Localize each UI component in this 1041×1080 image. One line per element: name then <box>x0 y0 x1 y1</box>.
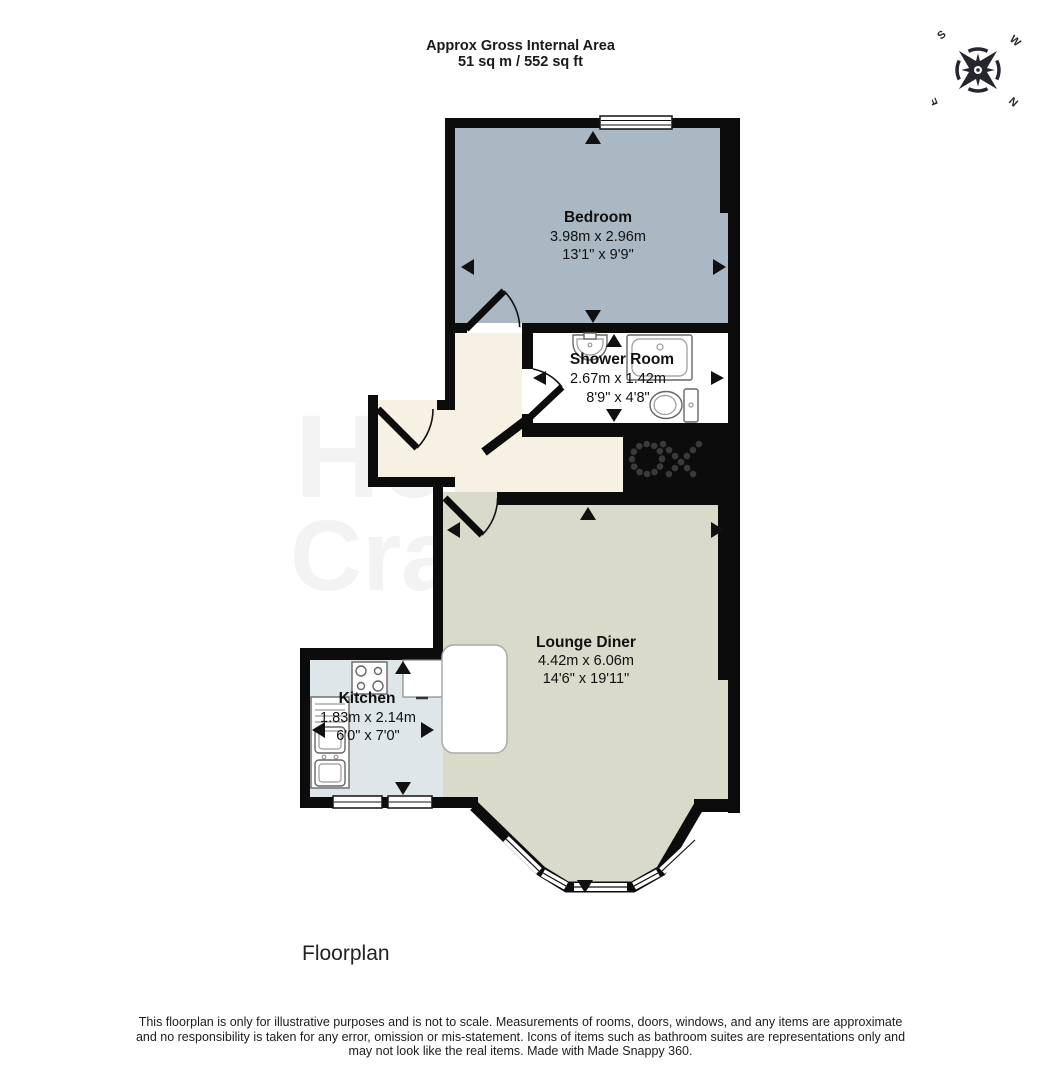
wall <box>368 477 455 487</box>
wall <box>433 487 443 660</box>
wall <box>445 118 455 333</box>
bedroom-metric-label: 3.98m x 2.96m <box>550 229 646 245</box>
disclaimer-line-2: and no responsibility is taken for any e… <box>0 1030 1041 1045</box>
disclaimer-line-1: This floorplan is only for illustrative … <box>0 1015 1041 1030</box>
wall <box>445 333 455 410</box>
kitchen-name-label: Kitchen <box>339 690 396 707</box>
hallway-wing-floor <box>522 437 623 494</box>
floorplan-caption: Floorplan <box>302 942 390 966</box>
bedroom-imperial-label: 13'1" x 9'9" <box>562 247 633 263</box>
wall <box>300 797 333 808</box>
kitchen-metric-label: 1.83m x 2.14m <box>320 710 416 726</box>
floorplan-drawing: Hern Crabtree <box>0 0 1041 1080</box>
wall <box>445 118 600 128</box>
wall <box>445 323 467 333</box>
wall <box>522 323 733 333</box>
wall <box>437 400 455 410</box>
wall <box>720 118 728 213</box>
lounge-diner-name-label: Lounge Diner <box>536 634 636 651</box>
peninsula-counter <box>442 645 507 753</box>
hallway-floor <box>455 333 522 497</box>
bedroom-name-label: Bedroom <box>564 209 632 226</box>
wall <box>368 400 378 487</box>
kitchen-window-icon <box>333 796 432 808</box>
wall <box>435 797 478 808</box>
kitchen-imperial-label: 6'0" x 7'0" <box>336 728 399 744</box>
shower-room-imperial-label: 8'9" x 4'8" <box>586 390 649 406</box>
wall <box>522 333 533 369</box>
wall <box>497 492 733 505</box>
toilet-icon <box>650 389 698 422</box>
wall <box>300 648 435 660</box>
disclaimer-line-3: may not look like the real items. Made w… <box>0 1044 1041 1059</box>
lounge-diner-imperial-label: 14'6" x 19'11" <box>543 671 630 687</box>
shower-room-name-label: Shower Room <box>570 351 674 368</box>
bedroom-window-icon <box>600 116 672 129</box>
shower-room-metric-label: 2.67m x 1.42m <box>570 371 666 387</box>
wall <box>382 797 388 808</box>
appliance-icon <box>403 660 443 698</box>
wall <box>718 492 728 680</box>
disclaimer: This floorplan is only for illustrative … <box>0 1015 1041 1059</box>
wall <box>300 648 310 808</box>
lounge-diner-metric-label: 4.42m x 6.06m <box>538 653 634 669</box>
